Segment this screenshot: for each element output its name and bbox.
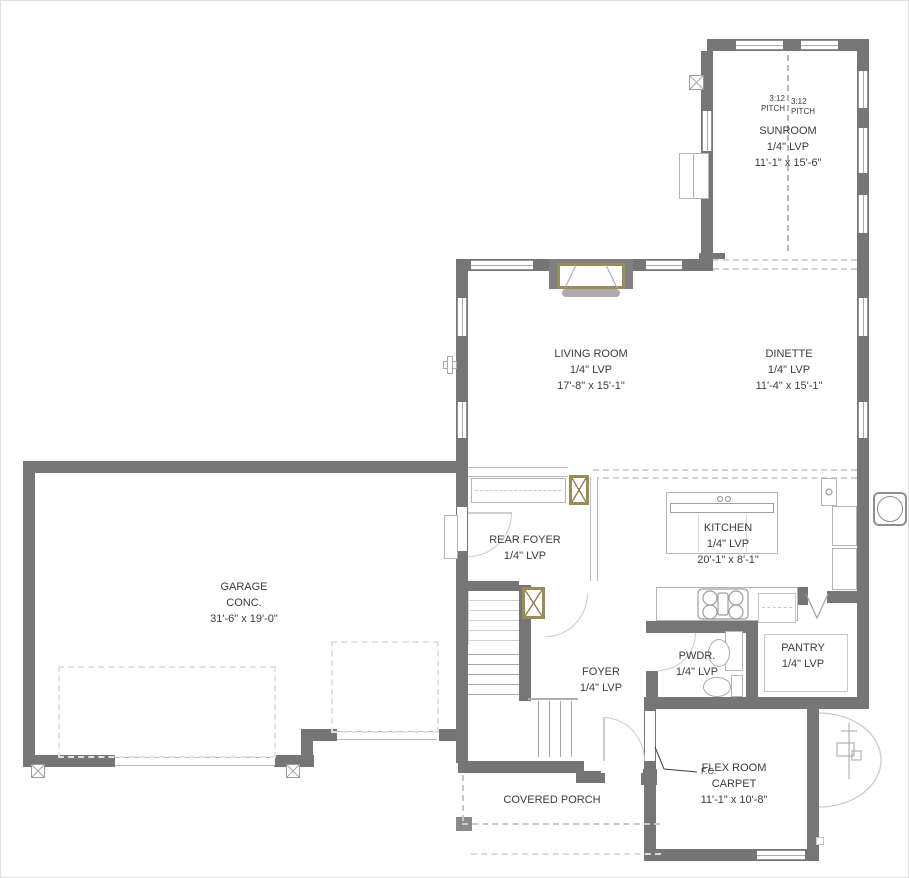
opening-kitchen-header	[593, 469, 857, 479]
pantry-folding-door-icon	[806, 594, 828, 618]
door-opening-garage-entry	[457, 507, 467, 551]
garage-post	[286, 764, 300, 778]
room-dims: 11'-1" x 15'-6"	[755, 155, 822, 171]
exterior-mark	[816, 837, 824, 845]
bench-dash	[475, 490, 561, 491]
wall-fixture	[447, 356, 453, 374]
fireplace-hearth	[562, 289, 620, 297]
exterior-post	[689, 75, 704, 90]
room-name: FOYER	[580, 664, 622, 680]
porch-edge-dashed	[462, 823, 660, 825]
wall-garage-west	[23, 461, 35, 767]
room-floor: 1/4" LVP	[755, 139, 822, 155]
room-dims: 20'-1" x 8'-1"	[697, 552, 759, 568]
floor-plan: SUNROOM 1/4" LVP 11'-1" x 15'-6" 3:12 PI…	[0, 0, 909, 878]
window	[858, 71, 868, 108]
wall-garage-north	[23, 461, 468, 473]
window-seat-divider	[693, 154, 694, 198]
room-label-powder: PWDR. 1/4" LVP	[676, 648, 718, 680]
room-dims: 11'-1" x 10'-8"	[701, 792, 768, 808]
door-leaf	[603, 717, 605, 761]
room-dims: 17'-8" x 15'-1"	[554, 378, 627, 394]
ac-condenser-pad	[873, 492, 907, 526]
window	[757, 850, 805, 860]
garage-door	[115, 757, 275, 766]
garage-entry-landing	[444, 515, 458, 559]
opening-sunroom-dinette	[713, 259, 857, 270]
room-name: PANTRY	[781, 640, 825, 656]
room-floor: CONC.	[210, 595, 278, 611]
room-label-kitchen: KITCHEN 1/4" LVP 20'-1" x 8'-1"	[697, 520, 759, 568]
room-label-pantry: PANTRY 1/4" LVP	[781, 640, 825, 672]
window	[457, 298, 467, 336]
room-label-garage: GARAGE CONC. 31'-6" x 19'-0"	[210, 579, 278, 627]
stair-basement	[528, 701, 578, 757]
room-label-sunroom: SUNROOM 1/4" LVP 11'-1" x 15'-6"	[755, 123, 822, 171]
room-name: SUNROOM	[755, 123, 822, 139]
window	[702, 111, 712, 151]
stair-lower-flight	[468, 645, 519, 699]
flex-door-arc	[819, 713, 881, 807]
pantry-cabinet	[758, 593, 796, 623]
room-floor: 1/4" LVP	[580, 680, 622, 696]
cased-opening-rearfoyer	[468, 467, 568, 477]
wall-garage-south-d	[439, 729, 461, 741]
pantry-cabinet-dash	[762, 607, 792, 608]
refrigerator	[832, 506, 857, 546]
toilet-tank	[731, 675, 743, 697]
pitch-label-left: 3:12 PITCH	[745, 94, 785, 113]
pitch-word: PITCH	[791, 107, 831, 117]
room-label-porch: COVERED PORCH	[503, 792, 600, 808]
room-floor: 1/4" LVP	[554, 362, 627, 378]
wall-rearfoyer-south	[456, 581, 519, 591]
cabinet	[821, 478, 837, 506]
utility-equipment-icon	[837, 723, 861, 779]
room-floor: 1/4" LVP	[697, 536, 759, 552]
room-name: REAR FOYER	[489, 532, 561, 548]
cabinet	[832, 548, 857, 590]
fc-leader-line	[655, 747, 697, 772]
pitch-word: PITCH	[745, 104, 785, 114]
fireplace	[557, 263, 625, 289]
window	[471, 260, 533, 270]
room-name: KITCHEN	[697, 520, 759, 536]
door-opening-front	[601, 763, 643, 773]
window	[646, 260, 682, 270]
room-label-foyer: FOYER 1/4" LVP	[580, 664, 622, 696]
garage-parking-outline	[331, 641, 439, 733]
window	[858, 195, 868, 233]
cased-opening-flex	[645, 711, 655, 761]
room-dims: 11'-4" x 15'-1"	[756, 378, 823, 394]
room-name: COVERED PORCH	[503, 792, 600, 808]
window	[457, 402, 467, 438]
room-floor: 1/4" LVP	[756, 362, 823, 378]
stair-upper-flight	[468, 591, 519, 645]
garage-post	[31, 764, 45, 778]
room-label-rearfoyer: REAR FOYER 1/4" LVP	[489, 532, 561, 564]
door-leaf	[468, 512, 512, 514]
wall-porch-north	[458, 761, 584, 773]
stair-rail	[528, 698, 578, 700]
room-floor: CARPET	[701, 776, 768, 792]
door-swing	[546, 593, 588, 637]
pitch-ratio: 3:12	[791, 97, 831, 107]
window-seat	[679, 153, 709, 199]
window	[736, 40, 783, 50]
pitch-label-right: 3:12 PITCH	[791, 97, 831, 116]
room-floor: 1/4" LVP	[489, 548, 561, 564]
window	[858, 298, 868, 336]
room-label-dinette: DINETTE 1/4" LVP 11'-4" x 15'-1"	[756, 346, 823, 394]
kitchen-island-counter	[670, 503, 774, 513]
tan-column	[522, 587, 545, 619]
room-dims: 31'-6" x 19'-0"	[210, 611, 278, 627]
fc-note: F.C.	[701, 766, 716, 776]
garage-parking-outline	[58, 666, 276, 758]
room-floor: 1/4" LVP	[781, 656, 825, 672]
window	[858, 402, 868, 438]
pitch-ratio: 3:12	[745, 94, 785, 104]
porch-edge-dashed	[462, 775, 464, 821]
cased-opening-kitchen-west	[590, 477, 598, 581]
wall-porch-door-stub	[641, 769, 657, 785]
window	[858, 128, 868, 173]
room-floor: 1/4" LVP	[676, 664, 718, 680]
toilet-bowl	[703, 677, 731, 697]
wall-south-mid	[644, 697, 869, 709]
door-swing-front	[603, 717, 645, 761]
wall-pantry-north	[827, 591, 857, 603]
room-name: LIVING ROOM	[554, 346, 627, 362]
room-name: GARAGE	[210, 579, 278, 595]
tan-column	[569, 475, 589, 505]
porch-roofline-dashed	[471, 853, 661, 855]
window	[801, 40, 838, 50]
room-name: DINETTE	[756, 346, 823, 362]
room-name: PWDR.	[676, 648, 718, 664]
wall-sunroom-north	[707, 39, 869, 51]
room-label-living: LIVING ROOM 1/4" LVP 17'-8" x 15'-1"	[554, 346, 627, 394]
